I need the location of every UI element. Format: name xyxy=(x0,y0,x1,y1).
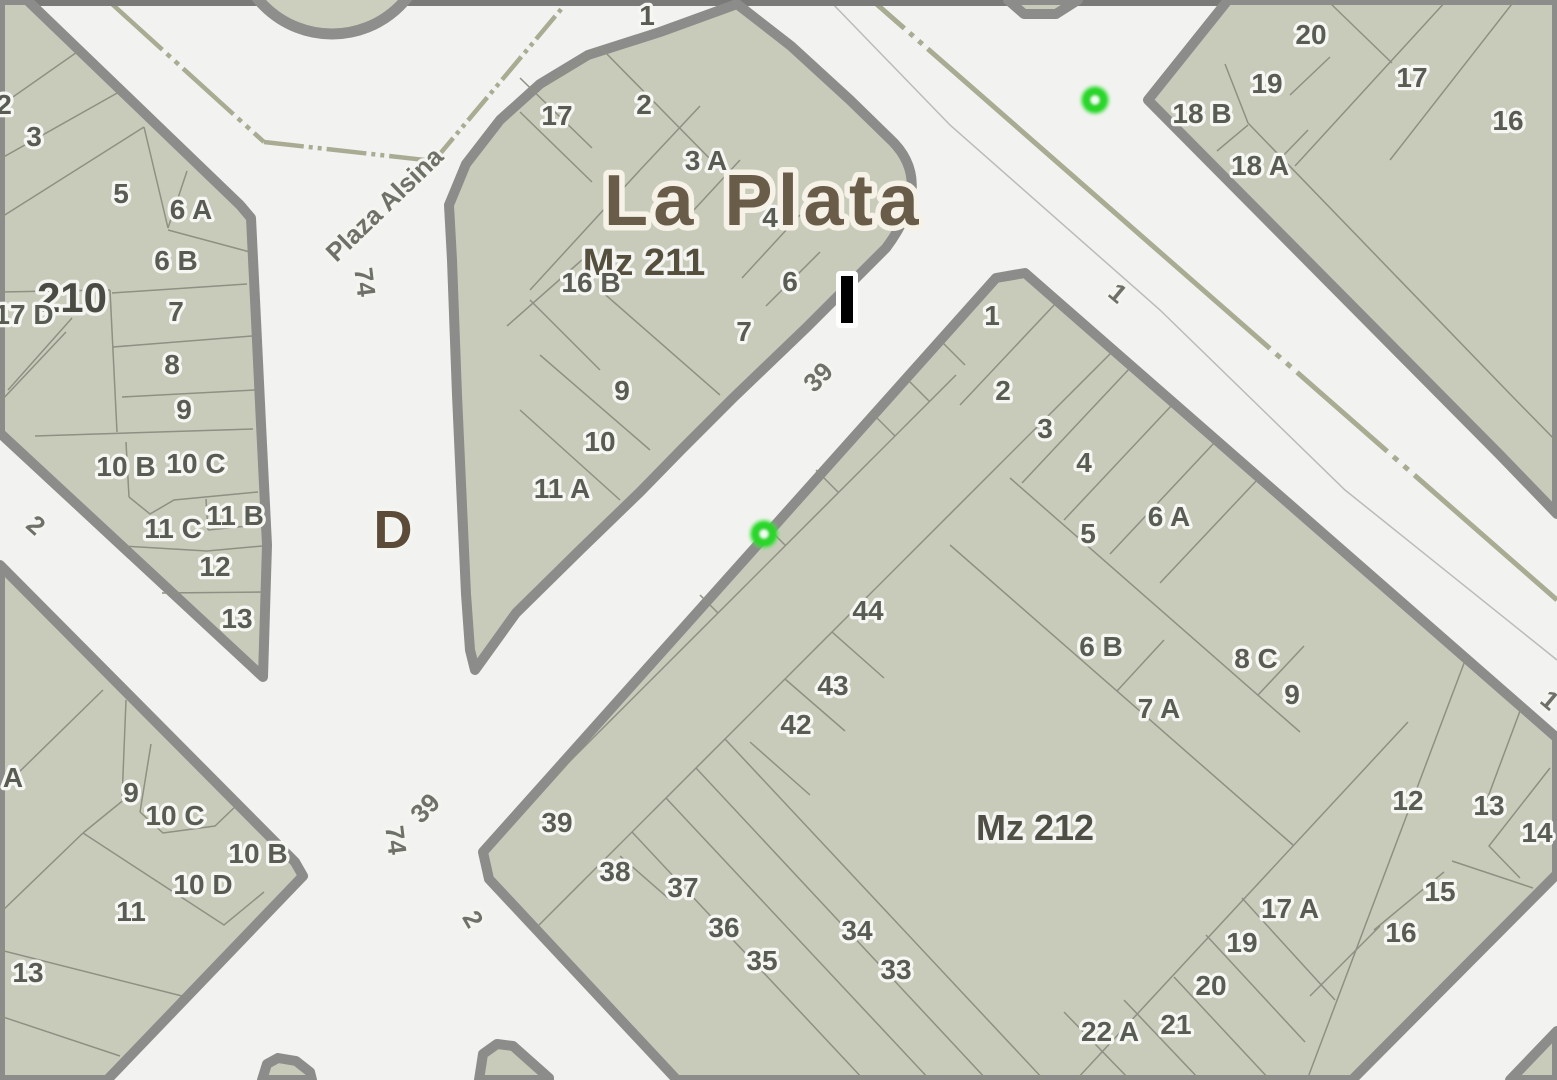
svg-text:A: A xyxy=(3,762,23,793)
svg-text:37: 37 xyxy=(667,872,698,903)
svg-text:12: 12 xyxy=(199,551,230,582)
svg-text:20: 20 xyxy=(1195,970,1226,1001)
svg-text:34: 34 xyxy=(841,915,873,946)
svg-text:9: 9 xyxy=(614,375,630,406)
svg-text:19: 19 xyxy=(1251,68,1282,99)
svg-text:8: 8 xyxy=(164,349,180,380)
svg-text:13: 13 xyxy=(1473,790,1504,821)
svg-text:11 C: 11 C xyxy=(144,513,202,544)
svg-text:6 B: 6 B xyxy=(1079,631,1123,662)
svg-text:11: 11 xyxy=(116,896,146,927)
svg-text:6: 6 xyxy=(782,266,798,297)
svg-text:44: 44 xyxy=(852,595,884,626)
svg-text:2: 2 xyxy=(636,89,652,120)
svg-text:33: 33 xyxy=(880,954,911,985)
svg-text:15: 15 xyxy=(1424,876,1455,907)
svg-text:3: 3 xyxy=(1037,413,1053,444)
svg-text:9: 9 xyxy=(176,394,192,425)
svg-text:17 A: 17 A xyxy=(1261,893,1319,924)
svg-text:16: 16 xyxy=(1385,917,1416,948)
svg-text:6 A: 6 A xyxy=(1148,501,1191,532)
svg-text:74: 74 xyxy=(379,824,412,857)
svg-text:2: 2 xyxy=(0,89,12,120)
svg-text:7: 7 xyxy=(168,296,184,327)
svg-text:18 A: 18 A xyxy=(1231,150,1289,181)
svg-text:11 B: 11 B xyxy=(206,500,264,531)
svg-text:10: 10 xyxy=(584,426,615,457)
svg-text:17: 17 xyxy=(541,100,572,131)
svg-text:9: 9 xyxy=(123,777,139,808)
svg-text:14: 14 xyxy=(1521,817,1553,848)
svg-text:4: 4 xyxy=(1076,447,1092,478)
svg-text:6 A: 6 A xyxy=(170,194,213,225)
svg-text:38: 38 xyxy=(599,856,630,887)
svg-text:11 A: 11 A xyxy=(534,473,591,504)
svg-text:3 A: 3 A xyxy=(685,145,728,176)
svg-text:18 B: 18 B xyxy=(1172,98,1231,129)
svg-text:7: 7 xyxy=(736,316,752,347)
svg-text:16 B: 16 B xyxy=(561,267,620,298)
svg-text:43: 43 xyxy=(817,670,848,701)
svg-text:7 A: 7 A xyxy=(1138,693,1181,724)
svg-text:13: 13 xyxy=(221,603,252,634)
svg-text:9: 9 xyxy=(1284,679,1300,710)
svg-text:19: 19 xyxy=(1226,927,1257,958)
svg-text:D: D xyxy=(374,500,413,560)
svg-text:Mz 212: Mz 212 xyxy=(976,807,1094,848)
svg-text:10 B: 10 B xyxy=(96,451,155,482)
svg-text:5: 5 xyxy=(113,178,129,209)
svg-text:39: 39 xyxy=(541,807,572,838)
svg-text:16: 16 xyxy=(1492,105,1523,136)
svg-text:10 B: 10 B xyxy=(228,838,287,869)
svg-text:36: 36 xyxy=(708,912,739,943)
svg-text:22 A: 22 A xyxy=(1081,1016,1139,1047)
svg-text:10 C: 10 C xyxy=(145,800,204,831)
svg-text:35: 35 xyxy=(746,945,777,976)
svg-text:20: 20 xyxy=(1295,19,1326,50)
svg-text:10 D: 10 D xyxy=(173,869,232,900)
svg-text:2: 2 xyxy=(995,375,1011,406)
svg-text:42: 42 xyxy=(780,709,811,740)
svg-text:8 C: 8 C xyxy=(1234,643,1278,674)
svg-text:12: 12 xyxy=(1392,785,1423,816)
svg-text:74: 74 xyxy=(348,266,381,299)
svg-text:1: 1 xyxy=(639,0,655,31)
svg-text:17: 17 xyxy=(1396,62,1427,93)
svg-text:1: 1 xyxy=(984,300,1000,331)
svg-text:13: 13 xyxy=(12,957,43,988)
svg-text:3: 3 xyxy=(26,121,42,152)
svg-text:21: 21 xyxy=(1160,1009,1191,1040)
svg-text:5: 5 xyxy=(1080,518,1096,549)
svg-text:10 C: 10 C xyxy=(166,448,225,479)
svg-text:6 B: 6 B xyxy=(154,245,198,276)
svg-text:4: 4 xyxy=(762,202,778,233)
svg-text:17 D: 17 D xyxy=(0,299,54,330)
